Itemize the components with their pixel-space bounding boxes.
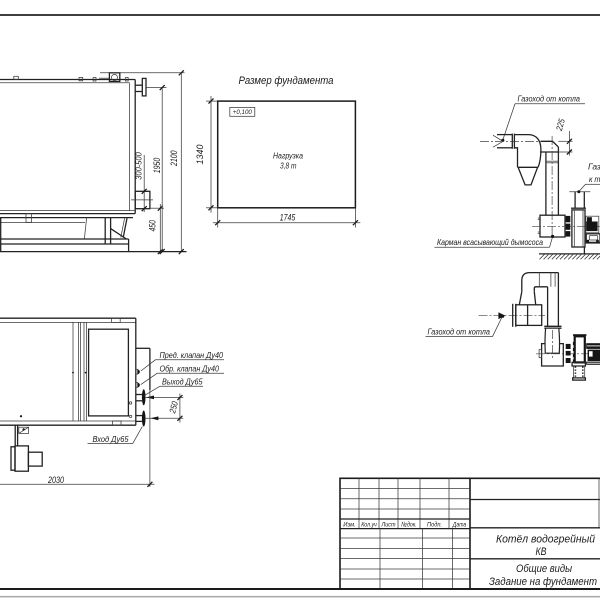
- svg-text:Вход Ду65: Вход Ду65: [93, 435, 129, 444]
- svg-text:Изм.: Изм.: [343, 521, 356, 528]
- svg-text:1950: 1950: [152, 158, 162, 174]
- svg-text:300-500: 300-500: [133, 152, 143, 180]
- svg-text:Размер фундамента: Размер фундамента: [239, 75, 334, 87]
- svg-text:Пред. клапан Ду40: Пред. клапан Ду40: [160, 351, 224, 360]
- svg-text:Газоход от котла: Газоход от котла: [428, 328, 491, 337]
- svg-text:Котёл водогрейный: Котёл водогрейный: [496, 534, 595, 546]
- svg-text:Лист: Лист: [381, 521, 396, 528]
- svg-text:3,8 т: 3,8 т: [280, 161, 297, 171]
- svg-text:Кол.уч: Кол.уч: [361, 521, 377, 528]
- svg-text:Обр. клапан Ду40: Обр. клапан Ду40: [160, 365, 220, 374]
- svg-text:Газоход: Газоход: [588, 163, 600, 172]
- svg-text:Дата: Дата: [452, 521, 466, 528]
- svg-text:Газоход от котла: Газоход от котла: [518, 95, 581, 104]
- svg-text:450: 450: [148, 220, 158, 232]
- svg-text:Нагрузка: Нагрузка: [273, 151, 303, 161]
- svg-text:2100: 2100: [169, 150, 179, 166]
- svg-text:Выход Ду65: Выход Ду65: [162, 377, 203, 386]
- svg-text:№док.: №док.: [401, 520, 417, 528]
- svg-text:1745: 1745: [280, 213, 296, 224]
- svg-text:Общие виды: Общие виды: [516, 563, 572, 575]
- svg-text:+0,100: +0,100: [233, 109, 252, 116]
- svg-text:КВ: КВ: [536, 546, 547, 558]
- svg-text:к трубе: к трубе: [589, 175, 600, 184]
- svg-text:Карман всасывающий дымососа: Карман всасывающий дымососа: [437, 238, 543, 247]
- svg-text:1340: 1340: [195, 145, 205, 165]
- svg-text:Задание на фундамент: Задание на фундамент: [489, 576, 597, 588]
- svg-text:Подп.: Подп.: [427, 520, 442, 528]
- svg-text:2030: 2030: [47, 475, 64, 486]
